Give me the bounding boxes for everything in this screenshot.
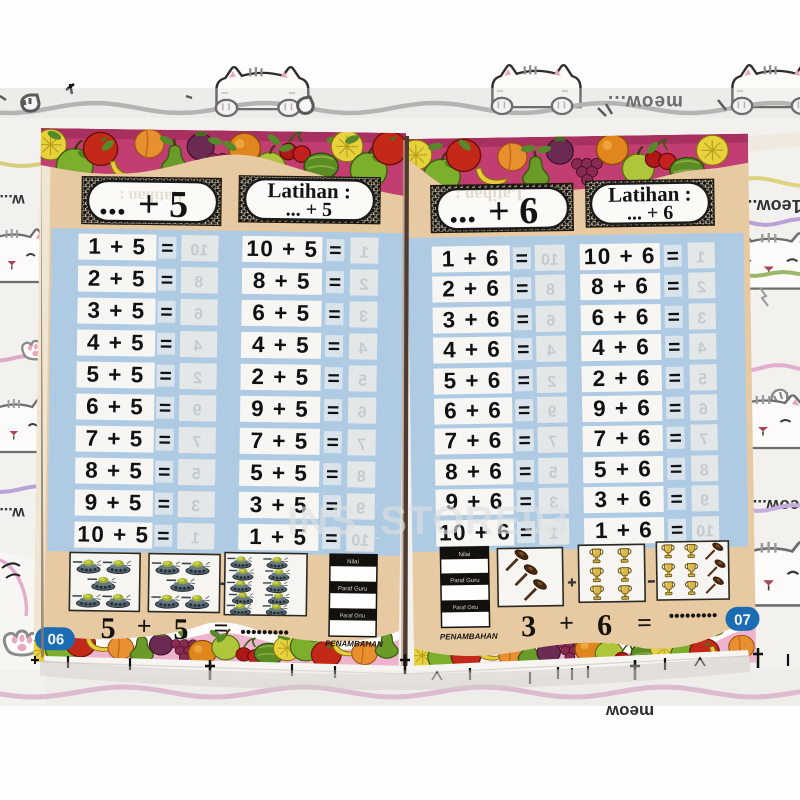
svg-text:7: 7 — [699, 431, 708, 448]
svg-text:+ 6: + 6 — [488, 190, 539, 233]
svg-text:PENAMBAHAN: PENAMBAHAN — [325, 639, 383, 649]
svg-text:6: 6 — [194, 306, 203, 323]
svg-text:=: = — [213, 613, 228, 642]
svg-text:Nilai: Nilai — [347, 559, 359, 565]
svg-text:Paraf Guru: Paraf Guru — [450, 578, 479, 584]
svg-text:3: 3 — [697, 310, 706, 327]
svg-text:+ 5: + 5 — [138, 183, 189, 226]
svg-text:=: = — [157, 525, 170, 548]
svg-text:2 + 5: 2 + 5 — [251, 364, 310, 390]
svg-text:=: = — [516, 277, 529, 300]
svg-text:1eow...: 1eow... — [742, 196, 800, 216]
svg-text:=: = — [159, 397, 172, 420]
svg-text:1 + 6: 1 + 6 — [442, 246, 501, 272]
svg-text:=: = — [519, 460, 532, 483]
svg-text:7 + 6: 7 + 6 — [593, 425, 652, 451]
svg-text:=: = — [667, 245, 680, 268]
svg-text:5 + 6: 5 + 6 — [594, 456, 653, 482]
svg-text:4: 4 — [358, 340, 367, 357]
svg-text:6 + 6: 6 + 6 — [444, 398, 503, 424]
svg-text:3 + 6: 3 + 6 — [594, 486, 653, 512]
svg-text:07: 07 — [734, 612, 751, 629]
svg-text:=: = — [158, 461, 171, 484]
svg-text:Paraf Ortu: Paraf Ortu — [453, 605, 478, 611]
svg-text:=: = — [517, 369, 530, 392]
svg-text:9: 9 — [548, 404, 557, 421]
svg-text:PENAMBAHAN: PENAMBAHAN — [440, 632, 498, 642]
svg-text:10 + 5: 10 + 5 — [77, 522, 150, 548]
svg-text:5 + 5: 5 + 5 — [250, 460, 309, 486]
svg-text:... + 5: ... + 5 — [286, 198, 333, 221]
svg-text:9 + 6: 9 + 6 — [593, 395, 652, 421]
svg-text:5 + 5: 5 + 5 — [86, 362, 145, 388]
svg-text:=: = — [158, 429, 171, 452]
svg-text:=: = — [158, 493, 171, 516]
svg-text:7: 7 — [357, 436, 366, 453]
svg-text:5: 5 — [358, 372, 367, 389]
svg-text:2: 2 — [547, 374, 556, 391]
svg-text:Paraf Guru: Paraf Guru — [338, 586, 367, 592]
svg-text:=: = — [637, 608, 652, 637]
svg-text:2 + 6: 2 + 6 — [592, 365, 651, 391]
svg-text:4 + 5: 4 + 5 — [87, 330, 146, 356]
svg-text:1: 1 — [696, 249, 705, 266]
svg-text:...: ... — [449, 190, 477, 230]
svg-text:=: = — [329, 271, 342, 294]
svg-text:3 + 5: 3 + 5 — [87, 298, 146, 324]
svg-text:=: = — [670, 458, 683, 481]
svg-text:10 + 5: 10 + 5 — [246, 236, 319, 262]
svg-text:=: = — [161, 269, 174, 292]
svg-text:4: 4 — [193, 338, 202, 355]
svg-text:... + 6: ... + 6 — [627, 202, 674, 225]
svg-text:06: 06 — [47, 631, 64, 648]
svg-text:2: 2 — [193, 370, 202, 387]
svg-text:+: + — [559, 608, 574, 637]
svg-text:8 + 5: 8 + 5 — [85, 458, 144, 484]
svg-text:=: = — [327, 367, 340, 390]
svg-text:6: 6 — [357, 404, 366, 421]
svg-text:=: = — [518, 429, 531, 452]
svg-text:4 + 6: 4 + 6 — [443, 337, 502, 363]
svg-text:=: = — [326, 463, 339, 486]
svg-text:=: = — [328, 303, 341, 326]
svg-text:4 + 6: 4 + 6 — [592, 334, 651, 360]
svg-text:=: = — [328, 335, 341, 358]
svg-text:+: + — [136, 611, 151, 640]
svg-text:3: 3 — [521, 610, 537, 643]
svg-text:7: 7 — [192, 434, 201, 451]
svg-text:=: = — [671, 519, 684, 542]
svg-text:2 + 5: 2 + 5 — [88, 266, 147, 292]
svg-text:8 + 5: 8 + 5 — [253, 268, 312, 294]
svg-text:6: 6 — [597, 609, 613, 642]
svg-text:7 + 6: 7 + 6 — [444, 428, 503, 454]
svg-text:8: 8 — [546, 282, 555, 299]
svg-text:3: 3 — [191, 498, 200, 515]
svg-text:=: = — [161, 237, 174, 260]
svg-text:=: = — [669, 397, 682, 420]
svg-text:3 + 6: 3 + 6 — [443, 307, 502, 333]
svg-text:10 + 6: 10 + 6 — [584, 243, 657, 269]
svg-text:1 + 6: 1 + 6 — [595, 517, 654, 543]
svg-text:6 + 5: 6 + 5 — [86, 394, 145, 420]
svg-text:7 + 5: 7 + 5 — [85, 426, 144, 452]
svg-text:=: = — [668, 367, 681, 390]
svg-text:6: 6 — [699, 401, 708, 418]
svg-text:6: 6 — [546, 313, 555, 330]
svg-text:8: 8 — [194, 274, 203, 291]
svg-text:=: = — [670, 488, 683, 511]
svg-text:w...: w... — [0, 191, 26, 208]
svg-text:10: 10 — [190, 242, 208, 259]
svg-text:=: = — [516, 308, 529, 331]
svg-text:=: = — [160, 301, 173, 324]
svg-text:7 + 5: 7 + 5 — [250, 428, 309, 454]
svg-text:1: 1 — [360, 244, 369, 261]
svg-text:=: = — [327, 399, 340, 422]
svg-text:9: 9 — [700, 492, 709, 509]
svg-text:2 + 6: 2 + 6 — [442, 276, 501, 302]
svg-text:5: 5 — [698, 371, 707, 388]
svg-text:=: = — [159, 365, 172, 388]
svg-text:8: 8 — [700, 462, 709, 479]
svg-text:7: 7 — [548, 434, 557, 451]
svg-text:=: = — [160, 333, 173, 356]
svg-text:Nilai: Nilai — [459, 552, 471, 558]
svg-text:2: 2 — [697, 279, 706, 296]
svg-text:=: = — [667, 275, 680, 298]
svg-text:INS_STORE03: INS_STORE03 — [287, 499, 569, 543]
svg-text:=: = — [329, 239, 342, 262]
svg-text:9 + 5: 9 + 5 — [251, 396, 310, 422]
svg-text:9 + 5: 9 + 5 — [85, 490, 144, 516]
svg-text:8 + 6: 8 + 6 — [591, 273, 650, 299]
svg-text:9: 9 — [192, 402, 201, 419]
svg-text:=: = — [667, 306, 680, 329]
svg-text:=: = — [669, 427, 682, 450]
svg-text:6 + 5: 6 + 5 — [252, 300, 311, 326]
svg-text:10: 10 — [696, 523, 714, 540]
svg-text:3: 3 — [359, 308, 368, 325]
svg-text:=: = — [518, 399, 531, 422]
svg-text:5: 5 — [549, 465, 558, 482]
svg-text:=: = — [516, 247, 529, 270]
svg-text:8: 8 — [357, 468, 366, 485]
svg-text:1: 1 — [191, 530, 200, 547]
svg-text:10: 10 — [541, 252, 559, 269]
svg-text:4: 4 — [547, 343, 556, 360]
svg-text:=: = — [517, 338, 530, 361]
svg-text:=: = — [668, 336, 681, 359]
svg-text:...: ... — [99, 182, 127, 222]
svg-text:2: 2 — [359, 276, 368, 293]
svg-text:5: 5 — [100, 612, 115, 645]
svg-text:5 + 6: 5 + 6 — [443, 368, 502, 394]
svg-text:w...: w... — [0, 504, 26, 521]
svg-text:5: 5 — [192, 466, 201, 483]
svg-text:6 + 6: 6 + 6 — [591, 304, 650, 330]
svg-text:=: = — [326, 431, 339, 454]
svg-text:4: 4 — [698, 340, 707, 357]
svg-text:1 + 5: 1 + 5 — [88, 234, 147, 260]
svg-text:4 + 5: 4 + 5 — [252, 332, 311, 358]
svg-text:Paraf Ortu: Paraf Ortu — [340, 613, 365, 619]
svg-text:8 + 6: 8 + 6 — [445, 459, 504, 485]
svg-text:5: 5 — [173, 613, 188, 646]
